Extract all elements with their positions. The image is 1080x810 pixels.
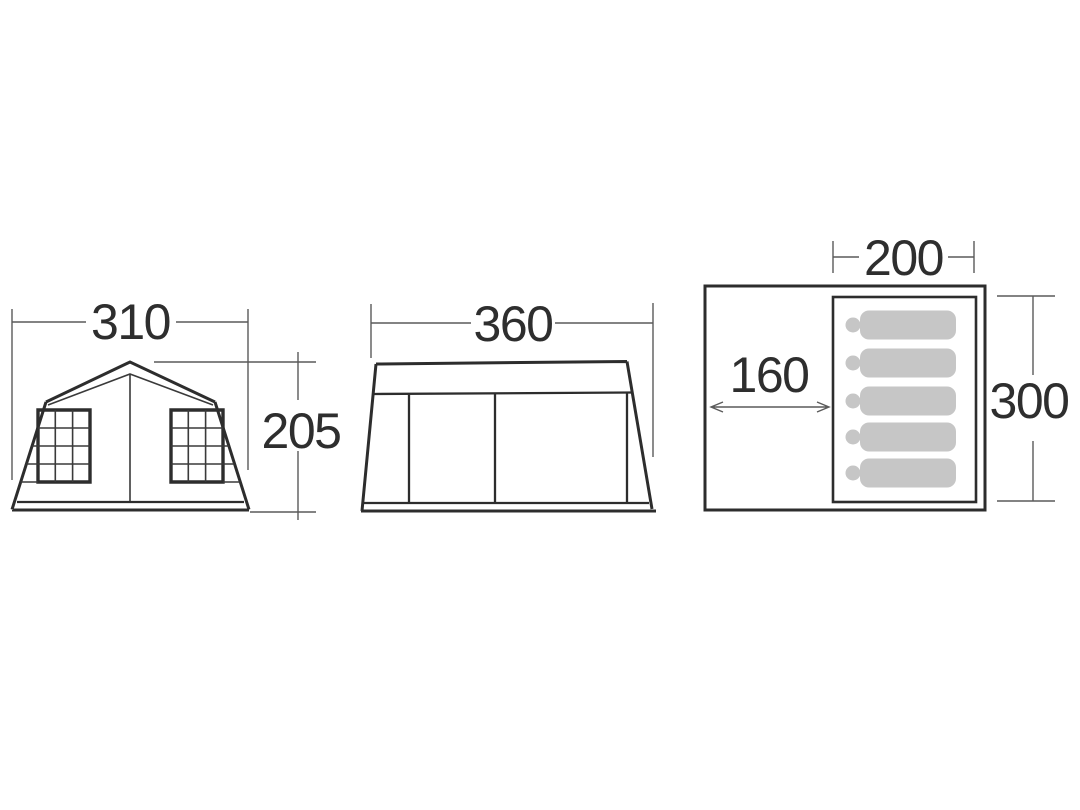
- sleeping-bag: [846, 311, 957, 340]
- sleeper-body: [860, 459, 956, 488]
- front-width-label: 310: [91, 294, 170, 350]
- sleeper-body: [860, 311, 956, 340]
- sleeper-body: [860, 423, 956, 452]
- side-width-label: 360: [474, 296, 553, 352]
- sleeping-bag: [846, 423, 957, 452]
- side-view-tent: [361, 362, 656, 512]
- floor-inner-width-label: 200: [864, 230, 943, 286]
- sleeping-bag: [846, 459, 957, 488]
- floor-front-depth-arrow: [711, 402, 829, 412]
- front-view-tent: [12, 362, 249, 510]
- side-panel-dividers: [409, 393, 627, 504]
- diagram-svg: 310 205 360: [0, 0, 1080, 810]
- floor-plan: 200 160 300: [705, 230, 1068, 510]
- sleeper-head: [846, 430, 861, 445]
- side-view-dimensions: 360: [371, 296, 653, 457]
- sleeper-body: [860, 349, 956, 378]
- sleeping-bag: [846, 387, 957, 416]
- side-tent-outline: [361, 362, 656, 512]
- floor-depth-label: 300: [990, 373, 1069, 429]
- side-band-line: [374, 393, 633, 395]
- sleeping-bag: [846, 349, 957, 378]
- front-view: 310 205: [12, 294, 340, 520]
- side-view: 360: [361, 296, 656, 511]
- sleeping-bags: [846, 311, 957, 488]
- floor-front-depth-label: 160: [730, 347, 809, 403]
- sleeper-body: [860, 387, 956, 416]
- sleeper-head: [846, 318, 861, 333]
- front-view-dimensions: 310 205: [12, 294, 340, 520]
- sleeper-head: [846, 466, 861, 481]
- sleeper-head: [846, 394, 861, 409]
- front-height-label: 205: [262, 403, 341, 459]
- tent-dimension-diagram: 310 205 360: [0, 0, 1080, 810]
- sleeper-head: [846, 356, 861, 371]
